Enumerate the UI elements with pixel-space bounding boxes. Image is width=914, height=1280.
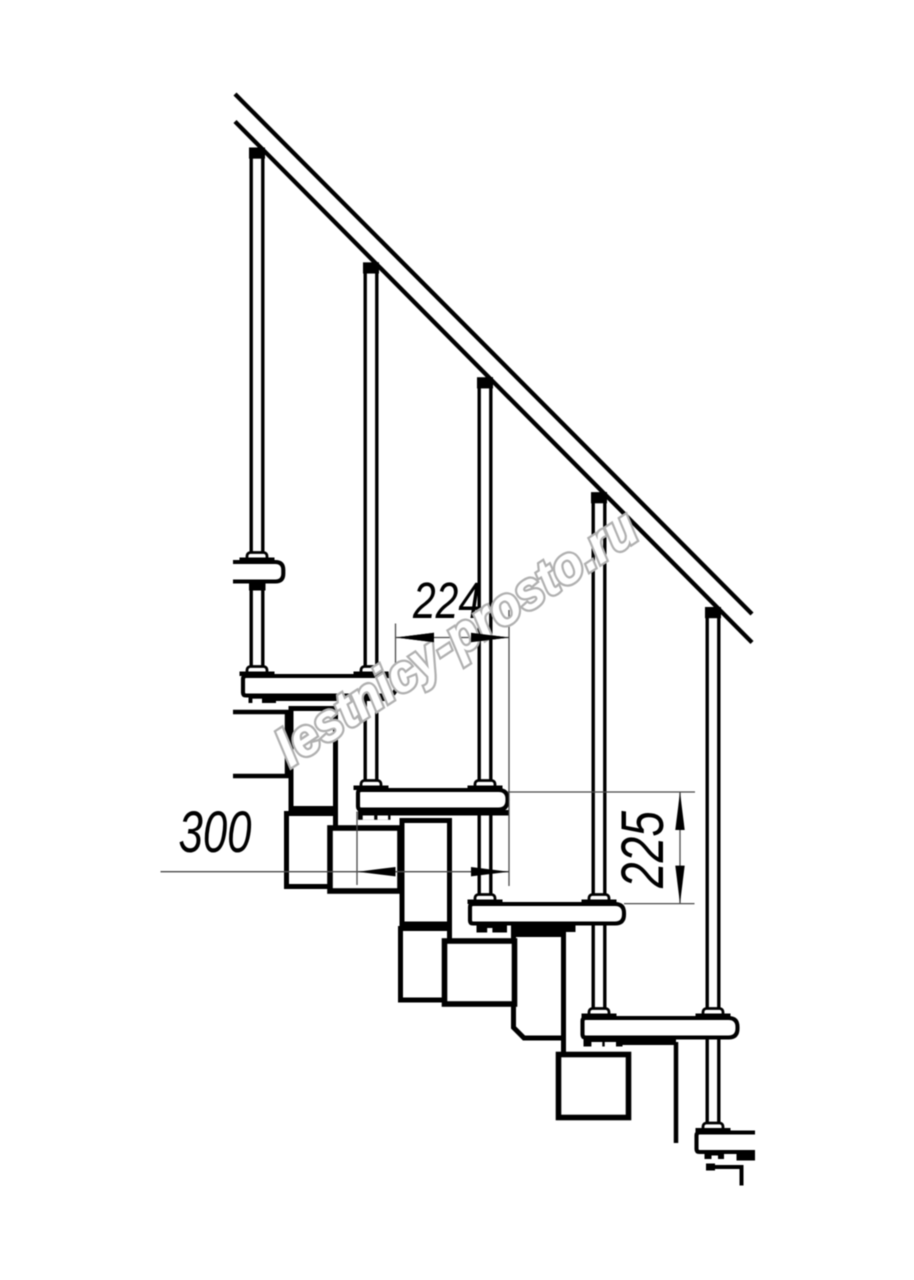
svg-text:225: 225	[609, 811, 676, 889]
svg-text:300: 300	[179, 800, 252, 865]
